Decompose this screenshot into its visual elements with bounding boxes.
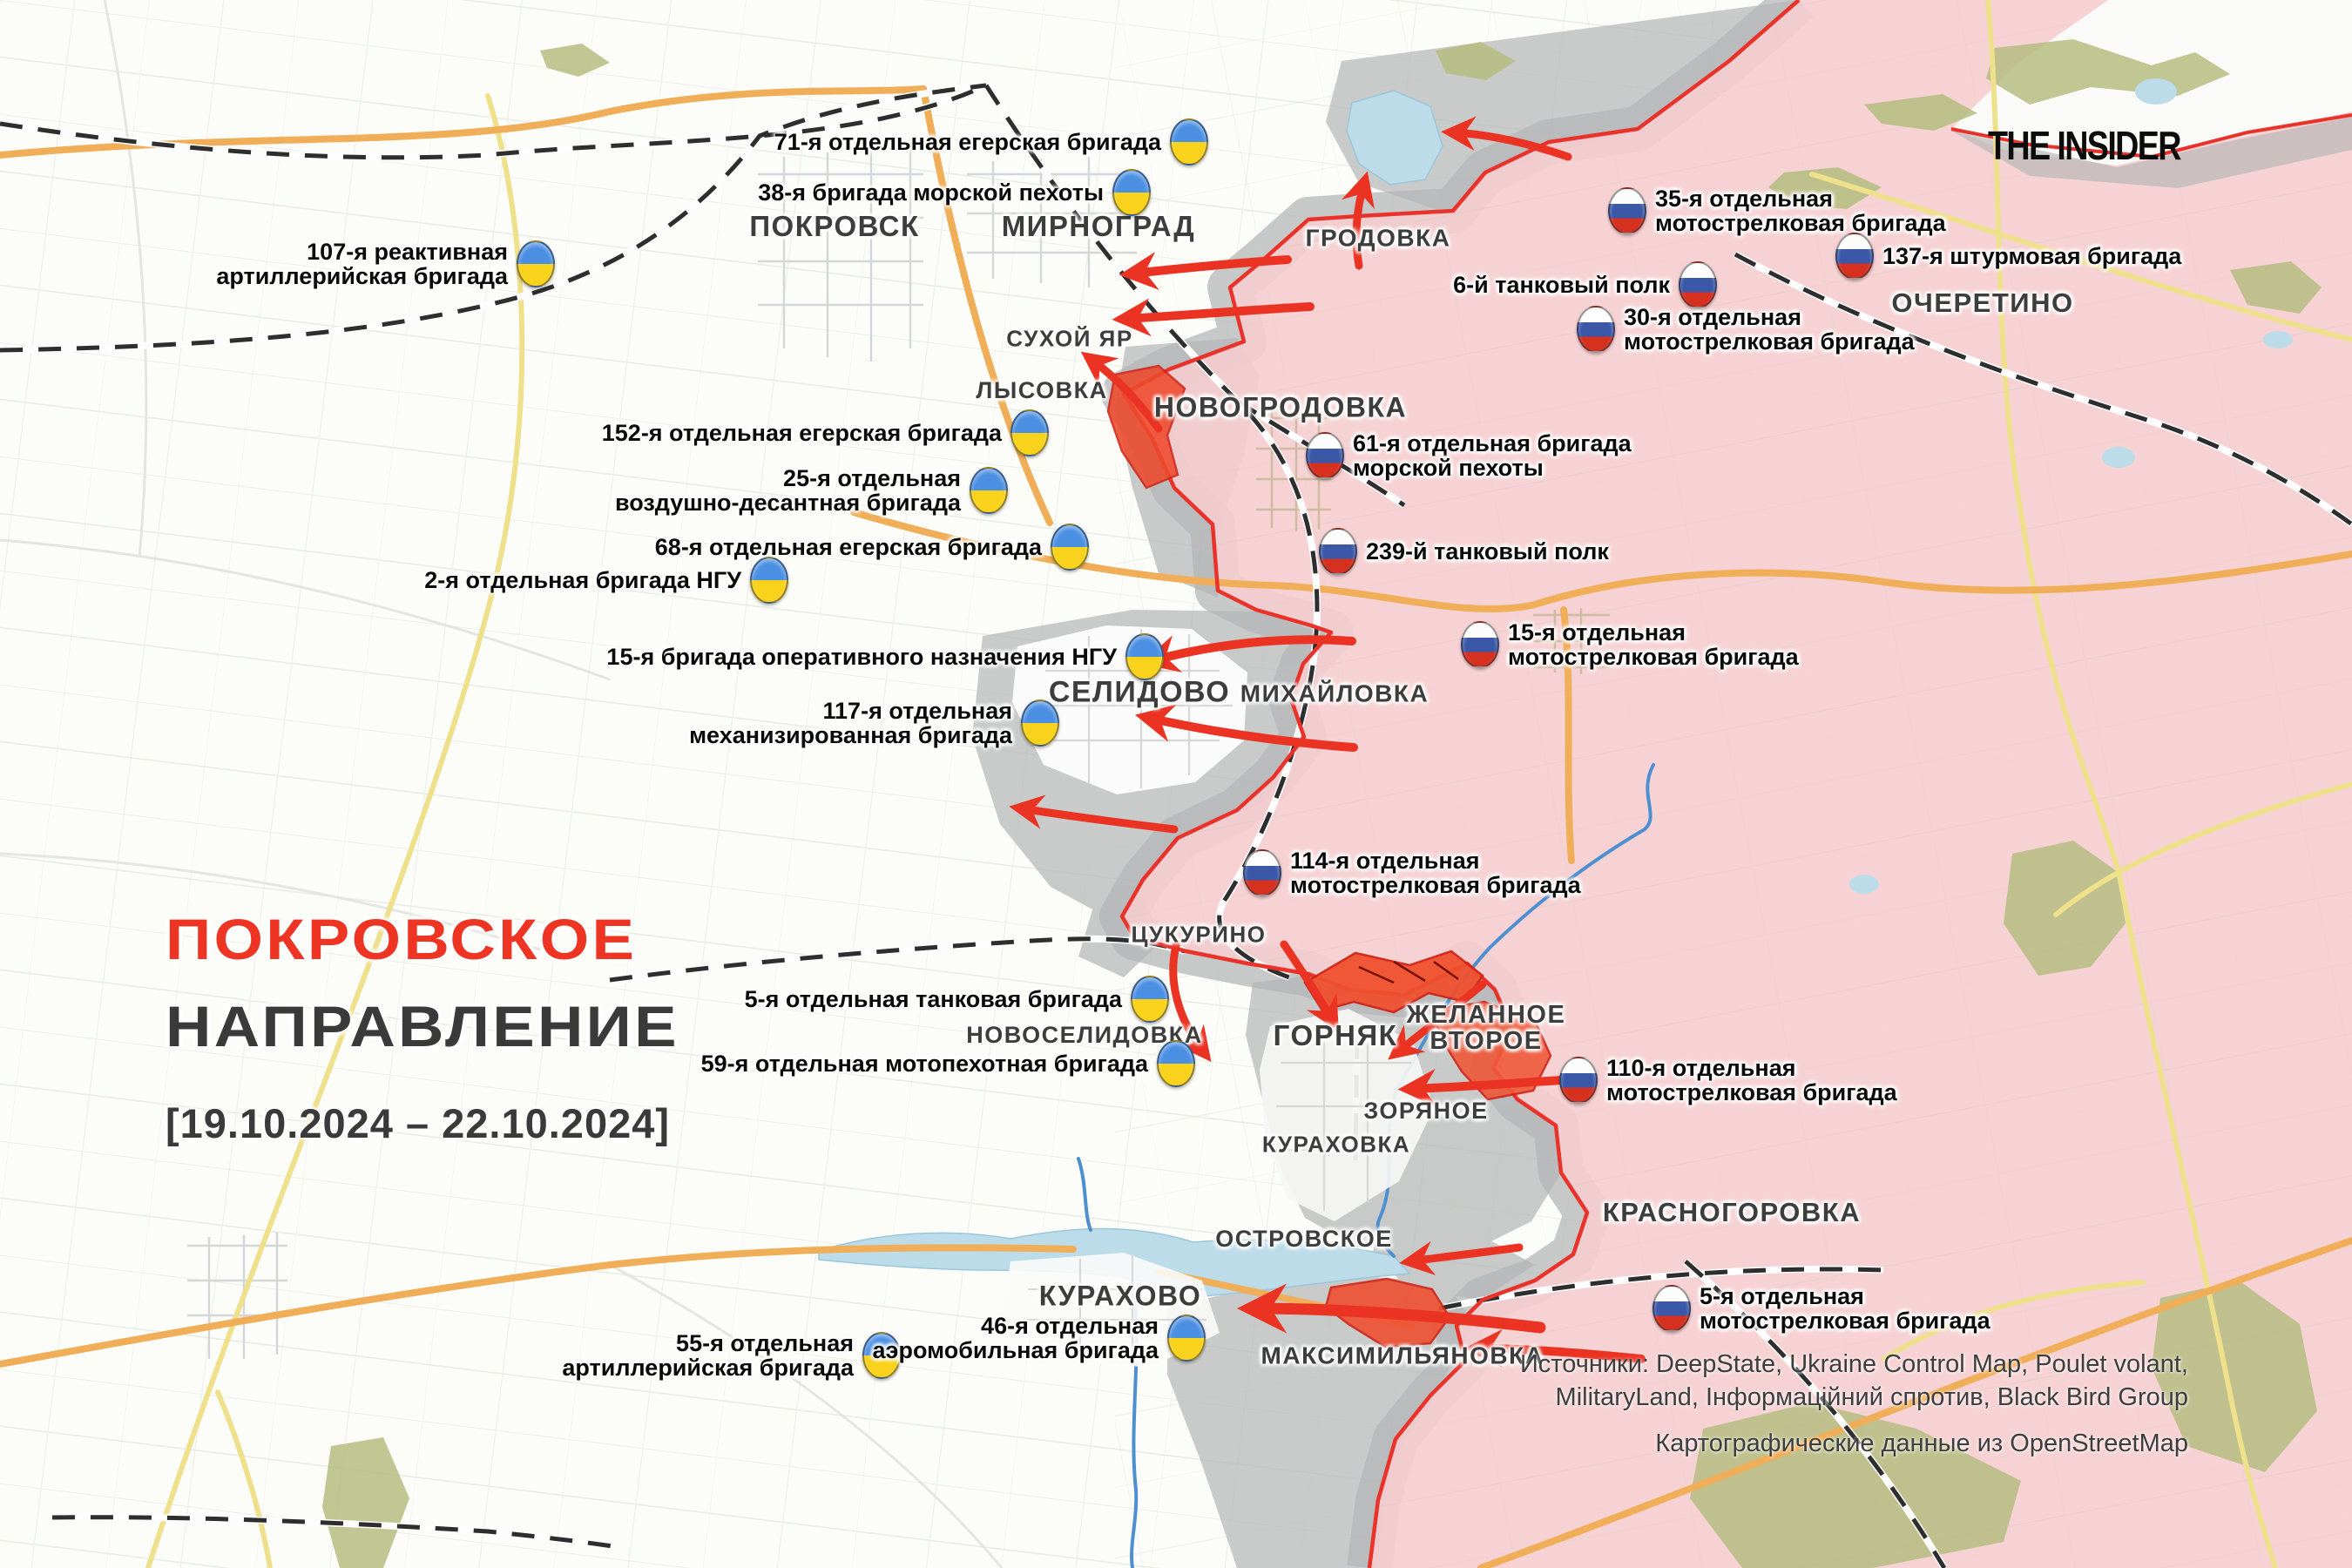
unit-name-line: 107-я реактивная bbox=[216, 240, 508, 264]
city-label: ОЧЕРЕТИНО bbox=[1891, 289, 2073, 317]
unit-label-ru: 110-я отдельнаямотострелковая бригада bbox=[1559, 1056, 1897, 1105]
city-name: СУХОЙ ЯР bbox=[1006, 327, 1132, 350]
ukraine-flag-icon bbox=[750, 557, 788, 604]
ukraine-flag-icon bbox=[517, 240, 555, 287]
unit-name-line: артиллерийская бригада bbox=[216, 264, 508, 288]
unit-label-ua: 107-я реактивнаяартиллерийская бригада bbox=[216, 240, 555, 288]
russia-flag-icon bbox=[1652, 1285, 1691, 1332]
unit-name-line: 30-я отдельная bbox=[1624, 305, 1915, 329]
unit-label-ru: 239-й танковый полк bbox=[1319, 528, 1609, 575]
unit-label-ru: 35-я отдельнаямотострелковая бригада bbox=[1608, 186, 1946, 235]
title-date-range: [19.10.2024 – 22.10.2024] bbox=[166, 1099, 670, 1147]
city-name: КУРАХОВКА bbox=[1262, 1132, 1410, 1156]
war-map: ПОКРОВСКМИРНОГРАДГРОДОВКАОЧЕРЕТИНОСУХОЙ … bbox=[0, 0, 2352, 1568]
unit-label-ru: 6-й танковый полк bbox=[1453, 261, 1717, 308]
the-insider-logo: THE INSIDER bbox=[1988, 122, 2180, 169]
sources-block: Источники: DeepState, Ukraine Control Ma… bbox=[1520, 1352, 2188, 1456]
unit-name-line: мотострелковая бригада bbox=[1606, 1080, 1897, 1105]
unit-name-line: 117-я отдельная bbox=[689, 699, 1012, 723]
ukraine-flag-icon bbox=[1170, 118, 1208, 166]
unit-name: 35-я отдельнаямотострелковая бригада bbox=[1655, 186, 1946, 235]
ukraine-flag-icon bbox=[970, 467, 1008, 514]
unit-name-line: 25-я отдельная bbox=[615, 466, 961, 490]
city-label: КУРАХОВКА bbox=[1262, 1132, 1410, 1156]
unit-name-line: аэромобильная бригада bbox=[873, 1338, 1159, 1362]
unit-name-line: 2-я отдельная бригада НГУ bbox=[424, 568, 741, 592]
unit-name-line: 5-я отдельная танковая бригада bbox=[745, 987, 1122, 1011]
unit-name-line: 71-я отдельная егерская бригада bbox=[774, 130, 1161, 154]
city-name: НОВОГРОДОВКА bbox=[1154, 393, 1407, 422]
unit-name: 114-я отдельнаямотострелковая бригада bbox=[1290, 848, 1581, 897]
russia-flag-icon bbox=[1608, 187, 1646, 234]
russia-flag-icon bbox=[1461, 621, 1499, 668]
unit-name-line: 55-я отдельная bbox=[562, 1331, 854, 1355]
city-label: КРАСНОГОРОВКА bbox=[1603, 1199, 1861, 1227]
city-name: ОЧЕРЕТИНО bbox=[1891, 289, 2073, 317]
unit-name-line: 15-я бригада оперативного назначения НГУ bbox=[606, 645, 1117, 669]
unit-label-ua: 15-я бригада оперативного назначения НГУ bbox=[606, 633, 1164, 680]
title-direction: ПОКРОВСКОЕ bbox=[166, 906, 720, 972]
unit-name: 61-я отдельная бригадаморской пехоты bbox=[1353, 431, 1632, 480]
city-label: СУХОЙ ЯР bbox=[1006, 327, 1132, 350]
unit-name-line: 239-й танковый полк bbox=[1366, 539, 1609, 564]
unit-label-ru: 15-я отдельнаямотострелковая бригада bbox=[1461, 620, 1799, 669]
city-name: ВТОРОЕ bbox=[1407, 1028, 1566, 1054]
unit-name-line: 38-я бригада морской пехоты bbox=[758, 180, 1104, 205]
city-label: ЛЫСОВКА bbox=[976, 378, 1107, 402]
russia-flag-icon bbox=[1319, 528, 1357, 575]
unit-name: 55-я отдельнаяартиллерийская бригада bbox=[562, 1331, 854, 1380]
city-name: МИХАЙЛОВКА bbox=[1240, 680, 1429, 706]
unit-name: 2-я отдельная бригада НГУ bbox=[424, 568, 741, 592]
unit-name-line: 59-я отдельная мотопехотная бригада bbox=[701, 1051, 1148, 1076]
unit-label-ua: 25-я отдельнаявоздушно-десантная бригада bbox=[615, 466, 1008, 515]
unit-label-ua: 71-я отдельная егерская бригада bbox=[774, 118, 1208, 166]
russia-flag-icon bbox=[1243, 849, 1281, 896]
unit-name: 30-я отдельнаямотострелковая бригада bbox=[1624, 305, 1915, 354]
unit-name-line: мотострелковая бригада bbox=[1624, 329, 1915, 354]
unit-name: 38-я бригада морской пехоты bbox=[758, 180, 1104, 205]
unit-name-line: мотострелковая бригада bbox=[1655, 211, 1946, 235]
unit-name: 5-я отдельная танковая бригада bbox=[745, 987, 1122, 1011]
unit-label-ua: 55-я отдельнаяартиллерийская бригада bbox=[562, 1331, 901, 1380]
city-label: КУРАХОВО bbox=[1039, 1281, 1201, 1310]
unit-label-ua: 5-я отдельная танковая бригада bbox=[745, 976, 1169, 1023]
unit-name: 15-я бригада оперативного назначения НГУ bbox=[606, 645, 1117, 669]
unit-name-line: мотострелковая бригада bbox=[1700, 1308, 1990, 1333]
unit-name-line: 110-я отдельная bbox=[1606, 1056, 1897, 1080]
city-name: ЦУКУРИНО bbox=[1132, 923, 1267, 946]
unit-name-line: 114-я отдельная bbox=[1290, 848, 1581, 873]
city-label: ГРОДОВКА bbox=[1306, 225, 1451, 250]
labels-layer: ПОКРОВСКМИРНОГРАДГРОДОВКАОЧЕРЕТИНОСУХОЙ … bbox=[0, 0, 2352, 1568]
unit-label-ru: 30-я отдельнаямотострелковая бригада bbox=[1577, 305, 1915, 354]
unit-label-ru: 61-я отдельная бригадаморской пехоты bbox=[1306, 431, 1632, 480]
city-label: ОСТРОВСКОЕ bbox=[1215, 1227, 1392, 1251]
unit-name-line: 68-я отдельная егерская бригада bbox=[655, 535, 1042, 559]
unit-name: 68-я отдельная егерская бригада bbox=[655, 535, 1042, 559]
city-label: ГОРНЯК bbox=[1274, 1021, 1398, 1051]
russia-flag-icon bbox=[1559, 1057, 1598, 1104]
unit-name-line: 5-я отдельная bbox=[1700, 1284, 1990, 1308]
unit-name-line: механизированная бригада bbox=[689, 723, 1012, 747]
russia-flag-icon bbox=[1577, 306, 1615, 353]
ukraine-flag-icon bbox=[1021, 700, 1059, 747]
city-label: ЗОРЯНОЕ bbox=[1363, 1098, 1488, 1123]
unit-name: 137-я штурмовая бригада bbox=[1882, 244, 2181, 268]
ukraine-flag-icon bbox=[1157, 1040, 1195, 1087]
unit-label-ua: 38-я бригада морской пехоты bbox=[758, 169, 1151, 216]
unit-label-ua: 2-я отдельная бригада НГУ bbox=[424, 557, 788, 604]
ukraine-flag-icon bbox=[1051, 524, 1089, 571]
unit-name-line: 61-я отдельная бригада bbox=[1353, 431, 1632, 456]
unit-label-ru: 114-я отдельнаямотострелковая бригада bbox=[1243, 848, 1581, 897]
unit-name: 239-й танковый полк bbox=[1366, 539, 1609, 564]
unit-name: 15-я отдельнаямотострелковая бригада bbox=[1508, 620, 1799, 669]
title-block: ПОКРОВСКОЕ НАПРАВЛЕНИЕ [19.10.2024 – 22.… bbox=[166, 906, 670, 1147]
sources-line-3: Картографические данные из OpenStreetMap bbox=[1520, 1431, 2188, 1456]
unit-name: 46-я отдельнаяаэромобильная бригада bbox=[873, 1314, 1159, 1362]
unit-label-ua: 152-я отдельная егерская бригада bbox=[602, 409, 1049, 456]
city-name: КУРАХОВО bbox=[1039, 1281, 1201, 1310]
ukraine-flag-icon bbox=[1125, 633, 1164, 680]
ukraine-flag-icon bbox=[1167, 1315, 1206, 1362]
city-label: ЦУКУРИНО bbox=[1132, 923, 1267, 946]
unit-name: 152-я отдельная егерская бригада bbox=[602, 421, 1002, 445]
unit-name: 107-я реактивнаяартиллерийская бригада bbox=[216, 240, 508, 288]
city-name: ЗОРЯНОЕ bbox=[1363, 1098, 1488, 1123]
city-label: ЖЕЛАННОЕВТОРОЕ bbox=[1407, 1002, 1566, 1054]
ukraine-flag-icon bbox=[1010, 409, 1049, 456]
russia-flag-icon bbox=[1835, 233, 1874, 280]
city-name: ЖЕЛАННОЕ bbox=[1407, 1002, 1566, 1028]
city-name: ЛЫСОВКА bbox=[976, 378, 1107, 402]
unit-name-line: 15-я отдельная bbox=[1508, 620, 1799, 645]
unit-name: 59-я отдельная мотопехотная бригада bbox=[701, 1051, 1148, 1076]
unit-name: 71-я отдельная егерская бригада bbox=[774, 130, 1161, 154]
city-label: СЕЛИДОВО bbox=[1049, 677, 1230, 707]
unit-name-line: артиллерийская бригада bbox=[562, 1355, 854, 1380]
city-name: КРАСНОГОРОВКА bbox=[1603, 1199, 1861, 1227]
sources-line-2: MilitaryLand, Інформаційний спротив, Bla… bbox=[1520, 1385, 2188, 1410]
russia-flag-icon bbox=[1679, 261, 1717, 308]
unit-name-line: 6-й танковый полк bbox=[1453, 273, 1670, 297]
unit-name-line: воздушно-десантная бригада bbox=[615, 490, 961, 515]
ukraine-flag-icon bbox=[1112, 169, 1151, 216]
city-name: ГОРНЯК bbox=[1274, 1021, 1398, 1051]
city-name: ОСТРОВСКОЕ bbox=[1215, 1227, 1392, 1251]
unit-label-ua: 46-я отдельнаяаэромобильная бригада bbox=[873, 1314, 1206, 1362]
unit-name: 117-я отдельнаямеханизированная бригада bbox=[689, 699, 1012, 747]
sources-line-1: Источники: DeepState, Ukraine Control Ma… bbox=[1520, 1352, 2188, 1377]
unit-label-ua: 59-я отдельная мотопехотная бригада bbox=[701, 1040, 1195, 1087]
city-label: МАКСИМИЛЬЯНОВКА bbox=[1261, 1342, 1544, 1368]
unit-name: 6-й танковый полк bbox=[1453, 273, 1670, 297]
unit-name-line: морской пехоты bbox=[1353, 456, 1632, 480]
unit-label-ru: 137-я штурмовая бригада bbox=[1835, 233, 2181, 280]
unit-label-ua: 117-я отдельнаямеханизированная бригада bbox=[689, 699, 1059, 747]
unit-name-line: 137-я штурмовая бригада bbox=[1882, 244, 2181, 268]
unit-name-line: 152-я отдельная егерская бригада bbox=[602, 421, 1002, 445]
unit-name-line: мотострелковая бригада bbox=[1508, 645, 1799, 669]
unit-name: 5-я отдельнаямотострелковая бригада bbox=[1700, 1284, 1990, 1333]
city-name: ГРОДОВКА bbox=[1306, 225, 1451, 250]
unit-name: 110-я отдельнаямотострелковая бригада bbox=[1606, 1056, 1897, 1105]
city-label: МИХАЙЛОВКА bbox=[1240, 680, 1429, 706]
unit-name-line: 46-я отдельная bbox=[873, 1314, 1159, 1338]
russia-flag-icon bbox=[1306, 432, 1344, 479]
city-label: НОВОГРОДОВКА bbox=[1154, 393, 1407, 422]
unit-name-line: 35-я отдельная bbox=[1655, 186, 1946, 211]
ukraine-flag-icon bbox=[1131, 976, 1169, 1023]
unit-label-ru: 5-я отдельнаямотострелковая бригада bbox=[1652, 1284, 1990, 1333]
title-direction-2: НАПРАВЛЕНИЕ bbox=[166, 993, 720, 1059]
unit-name-line: мотострелковая бригада bbox=[1290, 873, 1581, 897]
city-name: СЕЛИДОВО bbox=[1049, 677, 1230, 707]
unit-name: 25-я отдельнаявоздушно-десантная бригада bbox=[615, 466, 961, 515]
city-name: МАКСИМИЛЬЯНОВКА bbox=[1261, 1342, 1544, 1368]
